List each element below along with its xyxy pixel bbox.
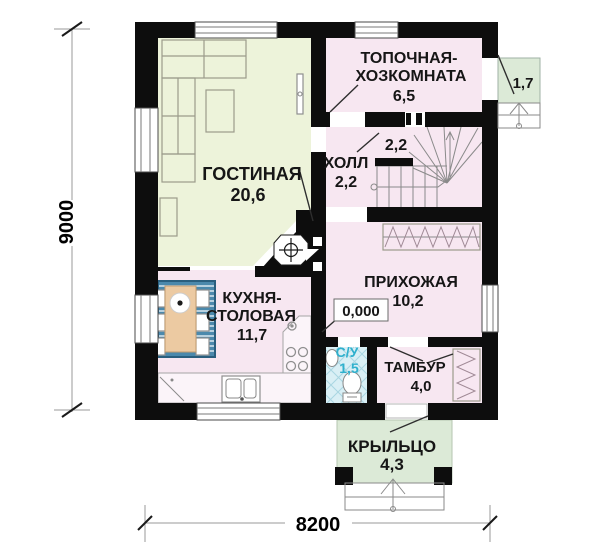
wc-label: С/У — [336, 344, 359, 360]
plate — [170, 293, 190, 313]
hall-area: 2,2 — [335, 174, 357, 191]
vent-shaft-2 — [416, 113, 422, 125]
floor-elevation-mark: 0,000 — [334, 299, 388, 321]
entry-hall-area: 10,2 — [392, 293, 423, 310]
porch-label: КРЫЛЬЦО — [348, 437, 436, 456]
living-top-window — [195, 22, 277, 38]
boiler-room-area: 6,5 — [393, 88, 415, 105]
dimension-left-value: 9000 — [56, 200, 78, 245]
floor-plan-drawing: 9000 8200 ГОСТИНАЯ 20,6 ТОПОЧНАЯ- ХОЗКОМ… — [0, 0, 600, 550]
entry-hall-label: ПРИХОЖАЯ — [364, 274, 458, 291]
porch-area: 4,3 — [380, 455, 404, 474]
living-left-window — [135, 108, 158, 172]
kitchen-bottom-window — [197, 403, 280, 420]
entrance-threshold — [386, 404, 427, 418]
side-porch-area: 1,7 — [513, 75, 534, 92]
porch-steps — [345, 479, 444, 512]
porch-column-right — [434, 467, 452, 485]
boiler-room-label-2: ХОЗКОМНАТА — [356, 68, 467, 85]
floor-plan-canvas: 9000 8200 ГОСТИНАЯ 20,6 ТОПОЧНАЯ- ХОЗКОМ… — [0, 0, 600, 550]
dimension-left: 9000 — [54, 22, 90, 417]
dimension-bottom-value: 8200 — [296, 514, 341, 536]
entry-right-window — [482, 285, 498, 332]
hall-label: ХОЛЛ — [324, 155, 369, 172]
under-stairs-area: 2,2 — [385, 137, 407, 154]
kitchen-sink — [222, 376, 260, 402]
living-room-floor — [158, 38, 311, 266]
kitchen-label-2: СТОЛОВАЯ — [206, 308, 296, 325]
under-stairs-closet-wall — [375, 158, 413, 166]
boiler-top-window — [355, 22, 398, 38]
side-porch-steps — [498, 103, 540, 129]
boiler-room-label-1: ТОПОЧНАЯ- — [361, 50, 458, 67]
dimension-bottom: 8200 — [138, 505, 497, 542]
living-room-area: 20,6 — [230, 185, 265, 205]
kitchen-left-window — [135, 295, 158, 343]
tv-unit — [297, 74, 303, 114]
kitchen-area: 11,7 — [237, 327, 267, 344]
floor-elevation-value: 0,000 — [342, 303, 380, 320]
tambour-area: 4,0 — [411, 378, 432, 395]
porch-column-left — [335, 467, 353, 485]
vent-shaft-1 — [406, 113, 411, 125]
tambour-label: ТАМБУР — [384, 359, 445, 376]
cabinet-knob — [171, 379, 174, 382]
wc-area: 1,5 — [339, 360, 359, 376]
toilet — [343, 372, 361, 402]
kitchen-label-1: КУХНЯ- — [222, 290, 281, 307]
living-room-label: ГОСТИНАЯ — [202, 164, 301, 184]
